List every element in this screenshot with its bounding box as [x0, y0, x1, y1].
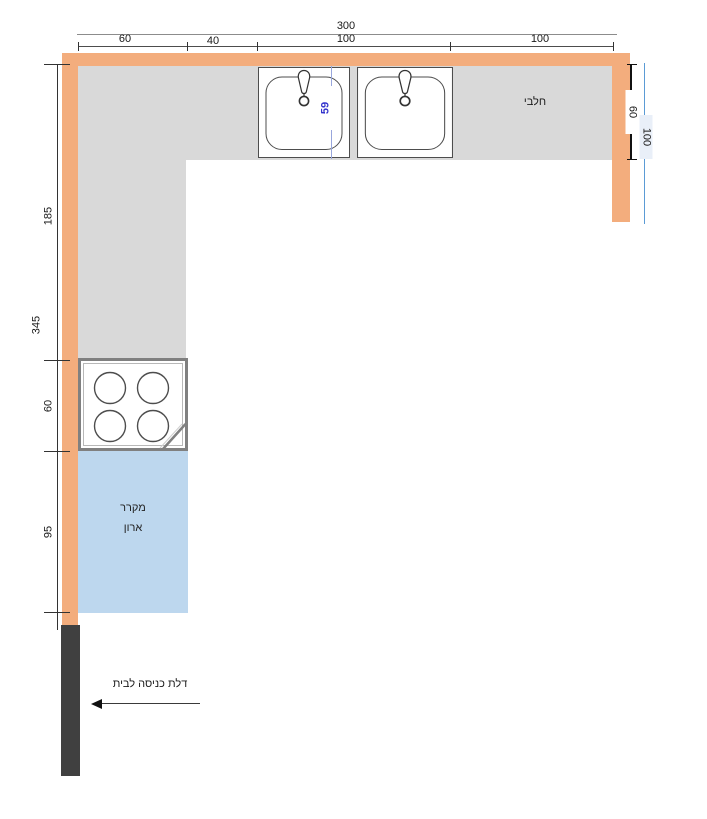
left-dimension-seg-3: 95	[43, 510, 56, 554]
burner-icon	[95, 411, 126, 442]
burner-icon	[95, 373, 126, 404]
right-wall-dimension: 100	[640, 115, 653, 159]
sink-width-dimension: 59	[320, 86, 333, 130]
tick	[613, 42, 614, 51]
tick	[44, 612, 70, 613]
top-dimension-seg-4: 100	[515, 33, 565, 46]
fridge-cabinet-area[interactable]: מקרר ארון	[78, 451, 188, 613]
tick	[44, 451, 70, 452]
sink-left[interactable]	[258, 67, 350, 158]
fridge-cabinet-label: מקרר ארון	[78, 498, 188, 538]
top-dimension-total: 300	[316, 20, 376, 33]
fridge-label-line1: מקרר	[78, 498, 188, 518]
wall-left	[62, 53, 78, 625]
countertop-left	[78, 66, 186, 360]
tick	[627, 159, 637, 160]
left-dimension-total: 345	[31, 303, 44, 347]
drain-icon	[400, 96, 410, 105]
left-dimension-line	[57, 64, 58, 630]
fridge-label-line2: ארון	[78, 518, 188, 538]
dairy-zone-label: חלבי	[505, 96, 565, 109]
burner-icon	[138, 373, 169, 404]
cooktop[interactable]	[78, 358, 188, 451]
left-dimension-seg-2: 60	[43, 384, 56, 428]
burner-icon	[138, 411, 169, 442]
tick	[627, 64, 637, 65]
entrance-arrow-line	[100, 703, 200, 704]
entrance-door[interactable]	[61, 625, 80, 776]
drain-icon	[299, 96, 308, 105]
entrance-door-label: דלת כניסה לבית	[98, 678, 202, 691]
tick	[44, 64, 70, 65]
tick	[78, 42, 79, 51]
right-depth-dimension: 60	[626, 90, 639, 134]
left-arrow-icon	[91, 699, 102, 709]
tick	[257, 42, 258, 51]
top-dimension-seg-2: 40	[193, 35, 233, 48]
top-dimension-segment-line	[78, 46, 614, 47]
left-dimension-seg-1: 185	[43, 194, 56, 238]
wall-top	[62, 53, 630, 66]
tick	[44, 360, 70, 361]
sink-right[interactable]	[357, 67, 453, 158]
tick	[187, 42, 188, 51]
kitchen-floor-plan: חלבי 59 מקרר ארון דלת כניסה לבית	[0, 0, 707, 819]
tick	[450, 42, 451, 51]
top-dimension-seg-1: 60	[105, 33, 145, 46]
top-dimension-seg-3: 100	[321, 33, 371, 46]
